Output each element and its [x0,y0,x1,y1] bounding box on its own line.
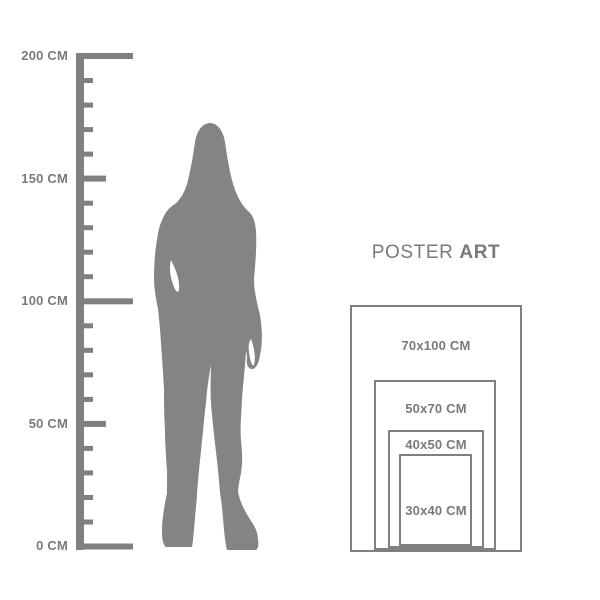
scale-label-0cm: 0 CM [0,538,68,554]
poster-size-label-40x50: 40x50 CM [350,437,522,452]
scale-label-50cm: 50 CM [0,416,68,432]
scale-ticks [76,53,133,550]
scale-label-200cm: 200 CM [0,48,68,64]
brand-title: POSTER ART [350,242,522,264]
poster-size-label-30x40: 30x40 CM [350,503,522,518]
brand-title-bold: ART [459,242,500,263]
poster-size-guide: 200 CM 150 CM 100 CM 50 CM 0 CM POSTER A… [0,0,600,600]
poster-size-label-70x100: 70x100 CM [350,338,522,353]
silhouette-body [154,123,262,550]
scale-label-150cm: 150 CM [0,171,68,187]
scale-label-100cm: 100 CM [0,293,68,309]
poster-size-label-50x70: 50x70 CM [350,401,522,416]
brand-title-regular: POSTER [372,242,454,263]
poster-outline-30x40 [399,454,472,546]
woman-silhouette-graphic [150,118,266,556]
